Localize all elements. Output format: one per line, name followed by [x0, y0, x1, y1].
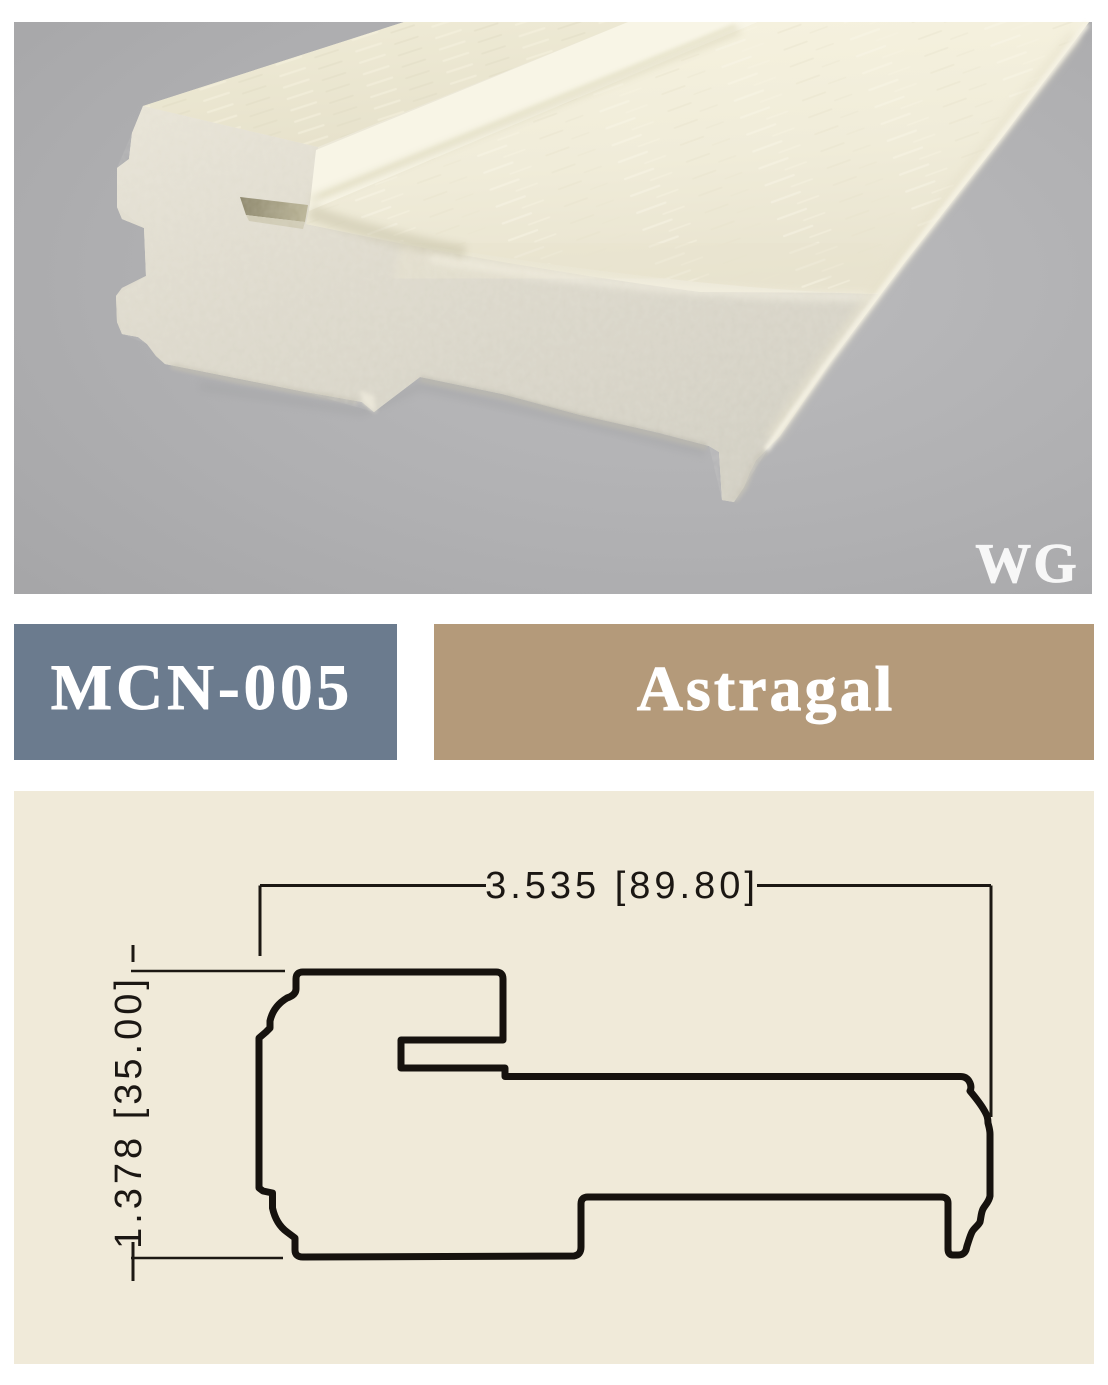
- svg-text:Astragal: Astragal: [637, 653, 896, 724]
- svg-text:3.535 [89.80]: 3.535 [89.80]: [485, 865, 759, 907]
- svg-text:MCN-005: MCN-005: [51, 652, 353, 724]
- svg-text:WG: WG: [975, 533, 1079, 595]
- svg-text:1.378 [35.00]: 1.378 [35.00]: [108, 975, 150, 1249]
